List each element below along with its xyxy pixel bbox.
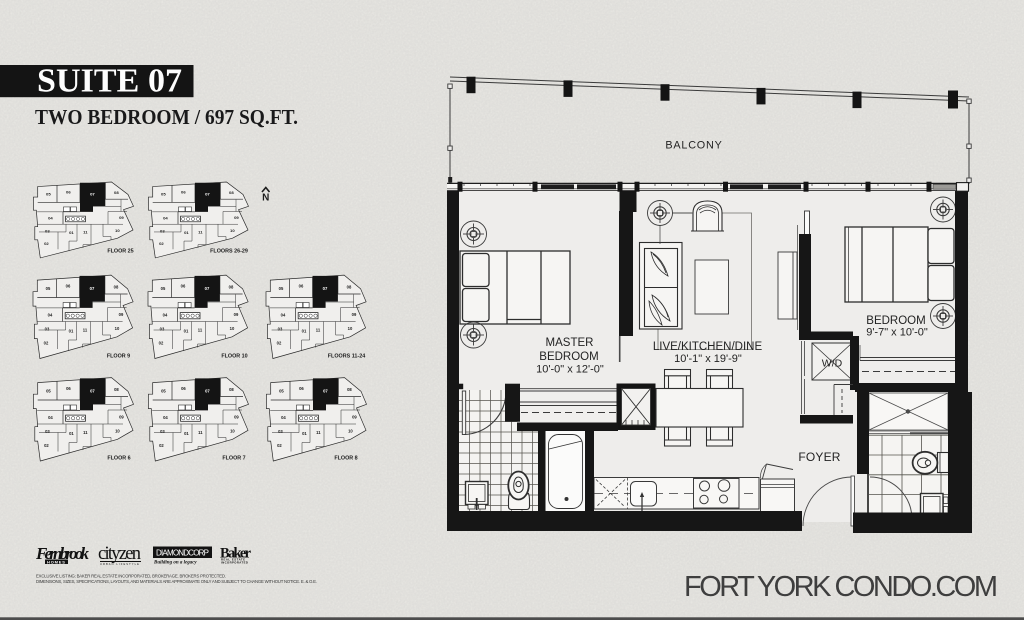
svg-text:BEDROOM: BEDROOM: [539, 351, 598, 363]
svg-text:SUITE 07: SUITE 07: [37, 63, 182, 100]
svg-text:FLOOR 25: FLOOR 25: [107, 249, 133, 255]
svg-text:FLOOR 8: FLOOR 8: [334, 456, 357, 462]
svg-text:9'-7" x 10'-0": 9'-7" x 10'-0": [866, 326, 928, 338]
svg-text:W/D: W/D: [822, 358, 843, 370]
svg-text:FORT YORK CONDO.COM: FORT YORK CONDO.COM: [684, 571, 998, 603]
svg-text:INCORPORATED: INCORPORATED: [221, 561, 248, 565]
svg-text:10'-1" x 19'-9": 10'-1" x 19'-9": [674, 353, 742, 365]
svg-text:FLOOR 6: FLOOR 6: [107, 456, 130, 462]
svg-text:BEDROOM: BEDROOM: [866, 315, 925, 327]
svg-text:HOMES: HOMES: [47, 559, 66, 564]
svg-text:DIAMONDCORP: DIAMONDCORP: [156, 549, 209, 558]
svg-text:FLOORS 26-29: FLOORS 26-29: [210, 249, 248, 255]
svg-text:N: N: [262, 193, 269, 204]
svg-text:DIMENSIONS, SIZES, SPECIFICATI: DIMENSIONS, SIZES, SPECIFICATIONS, LAYOU…: [36, 579, 317, 584]
svg-text:MASTER: MASTER: [546, 337, 594, 349]
svg-text:10'-0" x 12'-0": 10'-0" x 12'-0": [536, 363, 604, 375]
svg-text:LIVE/KITCHEN/DINE: LIVE/KITCHEN/DINE: [653, 341, 763, 353]
svg-text:FLOORS 11-24: FLOORS 11-24: [328, 354, 365, 360]
svg-text:Building on a legacy: Building on a legacy: [153, 561, 197, 566]
svg-text:FOYER: FOYER: [798, 450, 840, 464]
svg-text:BALCONY: BALCONY: [665, 140, 722, 152]
svg-text:FLOOR 9: FLOOR 9: [107, 354, 130, 360]
svg-text:TWO BEDROOM / 697 SQ.FT.: TWO BEDROOM / 697 SQ.FT.: [35, 105, 298, 129]
svg-text:FLOOR 7: FLOOR 7: [222, 456, 245, 462]
svg-text:URBAN LIFESTYLE: URBAN LIFESTYLE: [100, 562, 140, 566]
svg-text:EXCLUSIVE LISTING: BAKER REAL: EXCLUSIVE LISTING: BAKER REAL ESTATE INC…: [36, 574, 226, 579]
svg-text:FLOOR 10: FLOOR 10: [221, 354, 247, 360]
